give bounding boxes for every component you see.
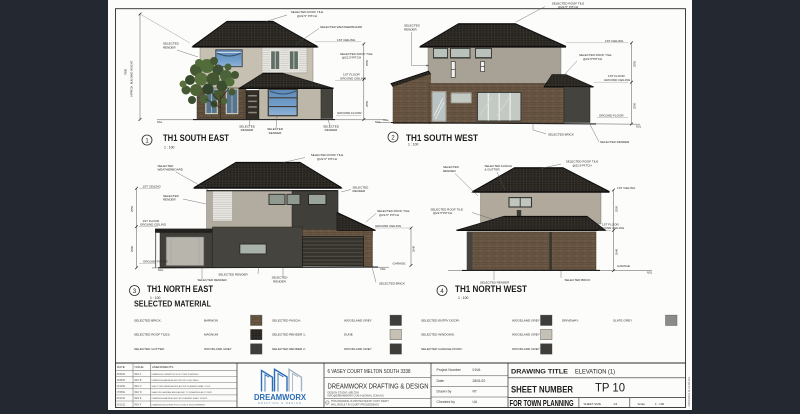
svg-text:1ST CEILING: 1ST CEILING (143, 184, 162, 188)
svg-text:DRAWINGS AMENDED AS PER RFI JO: DRAWINGS AMENDED AS PER RFI JOSH TASH I (152, 379, 200, 382)
svg-text:Checked by: Checked by (437, 400, 456, 404)
svg-text:Project Number: Project Number (437, 368, 462, 372)
svg-text:WOODLAND GREY: WOODLAND GREY (512, 318, 540, 322)
svg-text:SHEET NUMBER: SHEET NUMBER (511, 384, 573, 394)
svg-text:@22.5°PITCH: @22.5°PITCH (583, 57, 602, 61)
svg-text:20/11/22: 20/11/22 (117, 404, 126, 406)
svg-text:DATE: DATE (117, 365, 125, 369)
svg-text:Date: Date (437, 379, 444, 383)
svg-text:1 : 100: 1 : 100 (164, 146, 174, 150)
svg-text:7990: 7990 (124, 68, 128, 75)
svg-text:DRAWINGS MODIFIED FOR COUNCIL: DRAWINGS MODIFIED FOR COUNCIL ENDORSEMEN… (152, 403, 206, 406)
svg-text:6 VASEY COURT MELTON SOUTH 333: 6 VASEY COURT MELTON SOUTH 3338 (328, 369, 411, 375)
svg-text:SLATE GREY: SLATE GREY (613, 318, 632, 322)
svg-text:WOODLAND GREY: WOODLAND GREY (512, 333, 540, 337)
svg-text:SELECTED ENTRY DOOR:: SELECTED ENTRY DOOR: (421, 318, 460, 322)
svg-text:2640: 2640 (614, 248, 618, 255)
svg-text:REV B: REV B (135, 380, 142, 382)
svg-text:GROUND FLOOR: GROUND FLOOR (143, 259, 168, 263)
svg-text:01VA: 01VA (473, 368, 482, 372)
svg-text:GARAGE: GARAGE (617, 264, 630, 268)
svg-text:Drawn by: Drawn by (437, 389, 452, 393)
svg-text:NGL: NGL (636, 124, 642, 128)
svg-text:SELECTED RENDER 1:: SELECTED RENDER 1: (272, 333, 306, 337)
svg-text:GROUND CEILING: GROUND CEILING (340, 76, 367, 80)
svg-text:SELECTED WINDOWS:: SELECTED WINDOWS: (421, 333, 455, 337)
svg-text:2550: 2550 (365, 100, 369, 107)
svg-text:REV C: REV C (135, 386, 142, 388)
svg-text:NGL: NGL (647, 271, 653, 275)
svg-text:2550: 2550 (130, 205, 134, 212)
svg-text:10/08/21: 10/08/21 (117, 380, 127, 382)
svg-text:WILL RESULT IN COURT PROCEEDIN: WILL RESULT IN COURT PROCEEDINGS (331, 404, 379, 407)
svg-text:WEATHERBOARD: WEATHERBOARD (158, 168, 184, 172)
svg-text:REV A: REV A (135, 373, 142, 376)
svg-text:UA: UA (473, 400, 478, 404)
svg-text:RT: RT (473, 389, 477, 393)
svg-text:SHEOT PATH BEEN ADDED AS PER P: SHEOT PATH BEEN ADDED AS PER PLANNER EMA… (152, 385, 211, 388)
svg-text:NGL: NGL (157, 120, 163, 124)
svg-text:RENDER: RENDER (325, 128, 339, 132)
svg-text:TH1 SOUTH EAST: TH1 SOUTH EAST (163, 133, 229, 143)
svg-text:2550: 2550 (633, 60, 637, 67)
svg-text:30/06/21: 30/06/21 (117, 374, 127, 376)
svg-text:NGL: NGL (384, 118, 390, 122)
svg-text:RENDER: RENDER (273, 280, 287, 284)
svg-text:SELECTED MATERIAL: SELECTED MATERIAL (134, 298, 211, 308)
svg-text:WOODLAND GREY: WOODLAND GREY (344, 347, 372, 351)
svg-text:GROUND FLOOR: GROUND FLOOR (599, 114, 624, 118)
svg-text:12/10/21: 12/10/21 (117, 386, 127, 388)
svg-text:@22.5°PITCH: @22.5°PITCH (342, 56, 361, 60)
svg-text:@22.5°PITCH: @22.5°PITCH (572, 163, 591, 167)
svg-text:1 : 100: 1 : 100 (408, 143, 418, 147)
svg-text:ISSUE: ISSUE (135, 365, 144, 369)
svg-text:MAGNUM: MAGNUM (204, 333, 219, 337)
svg-text:SELECTED ROOF TILES:: SELECTED ROOF TILES: (134, 333, 171, 337)
svg-text:TH1 NORTH EAST: TH1 NORTH EAST (147, 284, 213, 294)
svg-text:17/08/21: 17/08/21 (117, 392, 127, 394)
svg-text:WOODLAND GREY: WOODLAND GREY (204, 347, 232, 351)
svg-text:APPROX. BUILDING HEIGHT: APPROX. BUILDING HEIGHT (130, 60, 134, 97)
svg-text:RENDER: RENDER (269, 131, 283, 135)
svg-text:AMENDMENTS: AMENDMENTS (152, 365, 173, 369)
svg-text:@22.5° PITCH: @22.5° PITCH (379, 213, 399, 217)
svg-text:2550: 2550 (365, 59, 369, 66)
svg-text:WOODLAND GREY: WOODLAND GREY (344, 318, 372, 322)
svg-text:& GUTTER: & GUTTER (485, 168, 501, 172)
svg-text:1 : 100: 1 : 100 (655, 402, 665, 406)
svg-text:RENDER: RENDER (163, 198, 177, 202)
svg-text:TH1 NORTH WEST: TH1 NORTH WEST (455, 284, 527, 294)
svg-text:GROUND CEILING: GROUND CEILING (375, 224, 402, 228)
svg-text:28/01/22: 28/01/22 (473, 379, 486, 383)
svg-text:GROUND CEILING: GROUND CEILING (598, 226, 625, 230)
svg-text:@22.5° PITCH: @22.5° PITCH (297, 14, 317, 18)
svg-text:INFO@DREAMWORX.COM.AU(OMAIL.CO: INFO@DREAMWORX.COM.AU(OMAIL.COM.AU) (328, 395, 384, 398)
svg-text:SELECTED RENDER 2:: SELECTED RENDER 2: (272, 347, 306, 351)
svg-text:NGL: NGL (158, 268, 164, 272)
svg-text:REV E: REV E (135, 398, 142, 400)
svg-text:2550: 2550 (633, 102, 637, 109)
svg-text:DREAMWORX DRAFTING & DESIGN: DREAMWORX DRAFTING & DESIGN (328, 381, 429, 390)
svg-text:RENDER: RENDER (353, 189, 367, 193)
svg-text:2580: 2580 (130, 245, 134, 252)
svg-text:SELECTED WEATHERBOARD: SELECTED WEATHERBOARD (320, 25, 363, 29)
svg-text:A3: A3 (614, 402, 618, 406)
svg-text:@22.5° PITCH: @22.5° PITCH (558, 5, 578, 9)
svg-text:DREAMWORX: DREAMWORX (254, 392, 306, 402)
svg-text:BARWON: BARWON (204, 318, 218, 322)
svg-text:2500: 2500 (614, 205, 618, 212)
svg-text:SELECTED BRICK: SELECTED BRICK (565, 278, 591, 282)
svg-text:DRIVEWAY:: DRIVEWAY: (562, 318, 579, 322)
svg-text:GROUND CEILING: GROUND CEILING (604, 78, 631, 82)
svg-text:GROUND FLOOR: GROUND FLOOR (337, 111, 362, 115)
svg-text:SELECTED RENDER: SELECTED RENDER (218, 272, 248, 276)
svg-text:DUNE: DUNE (344, 333, 353, 337)
svg-text:20/01/2023 11:21:40 AM: 20/01/2023 11:21:40 AM (687, 377, 691, 407)
svg-text:NGL: NGL (375, 120, 381, 124)
svg-text:2640: 2640 (412, 245, 416, 252)
svg-text:SELECTED GUTTER:: SELECTED GUTTER: (134, 347, 165, 351)
svg-text:SELECTED FASCIA:: SELECTED FASCIA: (272, 318, 301, 322)
svg-text:REV F: REV F (135, 404, 142, 406)
svg-text:Scale: Scale (638, 402, 646, 406)
svg-text:SELECTED BRICK: SELECTED BRICK (379, 281, 405, 285)
svg-text:DRAFTING & DESIGN: DRAFTING & DESIGN (258, 402, 302, 405)
svg-text:SELECTED BRICK: SELECTED BRICK (548, 132, 574, 136)
svg-text:TP 10: TP 10 (595, 381, 625, 395)
svg-text:SELECTED RENDER: SELECTED RENDER (600, 140, 630, 144)
svg-text:RENDER: RENDER (241, 128, 255, 132)
svg-text:SHADOW DIAGRAM BEEN ADDED TO D: SHADOW DIAGRAM BEEN ADDED TO DRAWINGS AS… (152, 391, 214, 394)
svg-text:1ST CEILING: 1ST CEILING (337, 38, 356, 42)
svg-text:RENDER: RENDER (443, 169, 457, 173)
svg-text:@22.5° PITCH: @22.5° PITCH (317, 157, 337, 161)
svg-text:@22.5°PITCH: @22.5°PITCH (433, 211, 452, 215)
svg-text:RENDER: RENDER (163, 45, 177, 49)
svg-text:RENDER: RENDER (404, 27, 418, 31)
svg-text:WOODLAND GREY: WOODLAND GREY (512, 347, 540, 351)
svg-text:ELEVATION (1): ELEVATION (1) (575, 369, 615, 376)
svg-text:SHEET SIZE: SHEET SIZE (584, 402, 601, 406)
svg-text:DRAWING TITLE: DRAWING TITLE (511, 369, 569, 376)
svg-text:GROUND CEILING: GROUND CEILING (140, 223, 167, 227)
svg-text:GARAGE: GARAGE (393, 262, 406, 266)
svg-text:SELECTED BRICK:: SELECTED BRICK: (134, 318, 162, 322)
svg-text:1ST CEILING: 1ST CEILING (617, 186, 636, 190)
svg-text:REV D: REV D (135, 392, 142, 394)
svg-text:DRAWINGS AMENDED AS PER PLANNE: DRAWINGS AMENDED AS PER PLANNER EMAIL 10… (152, 397, 209, 400)
svg-text:NGL: NGL (381, 267, 387, 271)
svg-text:1ST CEILING: 1ST CEILING (605, 39, 624, 43)
svg-text:1 : 100: 1 : 100 (458, 296, 468, 300)
svg-text:DRAWINGS SUBMITTED FOR TOWN PL: DRAWINGS SUBMITTED FOR TOWN PLANNING (152, 373, 199, 376)
svg-text:FOR TOWN PLANNING: FOR TOWN PLANNING (510, 398, 574, 408)
svg-text:SELECTED GARAGE DOOR:: SELECTED GARAGE DOOR: (421, 347, 463, 351)
svg-text:02/11/21: 02/11/21 (117, 398, 126, 400)
